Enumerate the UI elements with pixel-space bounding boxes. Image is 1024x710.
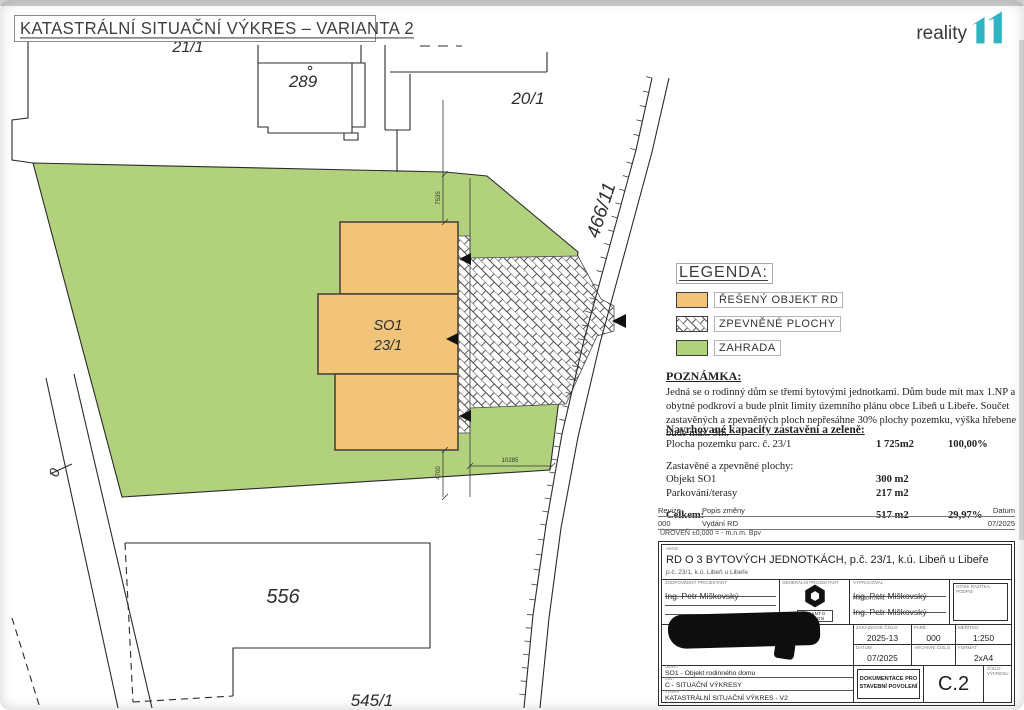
archive-cell: ARCHIVNÍ ČÍSLO (912, 645, 956, 665)
revision-table: Revize Popis změny Datum 000 Vydání RD 0… (658, 506, 1015, 532)
titleblock-numbers-row: ZAKÁZKOVÉ ČÍSLO 2025-13 PARÉ 000 MĚŘÍTKO… (662, 625, 1011, 666)
upper-parcel-lines (385, 45, 547, 172)
road-label: 466/11 (583, 180, 620, 240)
house-block-top (340, 222, 458, 294)
titleblock-project: AKCE RD O 3 BYTOVÝCH JEDNOTKÁCH, p.č. 23… (662, 545, 1011, 580)
paved-area (458, 236, 614, 433)
legend-item-object: ŘEŠENÝ OBJEKT RD (676, 292, 843, 308)
legend-label: ŘEŠENÝ OBJEKT RD (714, 292, 843, 308)
parcel-label-20-1: 20/1 (510, 89, 544, 108)
legend-swatch-green (676, 340, 708, 356)
parcel-label-556: 556 (266, 586, 300, 608)
object-label-parcel: 23/1 (373, 338, 402, 354)
photo-edge-top (0, 0, 1024, 6)
parcel-label-545-1: 545/1 (351, 691, 394, 710)
building-289 (258, 45, 365, 140)
redacted-area (662, 625, 854, 665)
scale-cell: MĚŘÍTKO 1:250 (956, 625, 1011, 645)
parcel-label-289: 289 (288, 72, 318, 91)
table-row: Zastavěné a zpevněné plochy: (666, 460, 1018, 473)
date-cell: DATUM 07/2025 (854, 645, 912, 665)
redaction-blob (668, 611, 821, 649)
legend-swatch-hatch (676, 316, 708, 332)
building-556 (125, 543, 430, 702)
quanto-hexagon-icon (802, 583, 828, 609)
level-note: ÚROVEŇ ±0,000 = - m.n.m. Bpv (660, 530, 761, 537)
logo-text: reality (916, 24, 967, 46)
job-number-cell: ZAKÁZKOVÉ ČÍSLO 2025-13 (854, 625, 912, 645)
stamp-cell: OTISK RAZÍTKA, PODPIS (950, 580, 1011, 624)
table-row: Objekt SO1 300 m2 (666, 473, 1018, 486)
legend-item-paved: ZPEVNĚNÉ PLOCHY (676, 316, 843, 332)
dim-top: 7535 (436, 191, 442, 205)
pare-cell: PARÉ 000 (912, 625, 956, 645)
house-block-bottom (335, 374, 458, 450)
logo-11-icon (970, 8, 1010, 46)
legend-label: ZPEVNĚNÉ PLOCHY (714, 316, 841, 332)
table-row: Parkování/terasy 217 m2 (666, 487, 1018, 500)
drawing-title: KATASTRÁLNÍ SITUAČNÍ VÝKRES – VARIANTA 2 (20, 18, 414, 39)
revision-row: 000 Vydání RD 07/2025 (658, 519, 1015, 530)
note-title: POZNÁMKA: (666, 369, 1018, 384)
legend-label: ZAHRADA (714, 340, 781, 356)
revision-header-row: Revize Popis změny Datum (658, 506, 1015, 517)
format-cell: FORMÁT 2xA4 (956, 645, 1011, 665)
dim-width: 10285 (502, 458, 519, 464)
capacities-title: Navrhované kapacity zastavění a zeleně: (666, 424, 1018, 436)
drawing-number: C.2 (938, 673, 969, 696)
dim-bottom: 4700 (436, 466, 442, 480)
legend: LEGENDA: ŘEŠENÝ OBJEKT RD ZPEVNĚNÉ PLOCH… (676, 263, 843, 356)
stage-cell: DOKUMENTACE PRO STAVEBNÍ POVOLENÍ (854, 666, 924, 702)
photo-edge-right (1019, 40, 1024, 540)
authors-cell: VYPRACOVAL Ing. Petr Miškovský PROJEKTOV… (850, 580, 950, 624)
project-title: RD O 3 BYTOVÝCH JEDNOTKÁCH, p.č. 23/1, k… (666, 554, 1007, 566)
legend-swatch-orange (676, 292, 708, 308)
table-row: Plocha pozemku parc. č. 23/1 1 725m2 100… (666, 438, 1018, 451)
legend-item-garden: ZAHRADA (676, 340, 843, 356)
drawing-title-box: KATASTRÁLNÍ SITUAČNÍ VÝKRES – VARIANTA 2 (14, 15, 376, 42)
cadastral-drawing-sheet: { "page": { "title": "KATASTRÁLNÍ SITUAČ… (0, 0, 1024, 710)
reality11-logo: reality (912, 6, 1014, 48)
titleblock-drawing-row: OBJEKT SO1 - Objekt rodinného domu ČÁST … (662, 666, 1011, 702)
drawing-id-cell: OBJEKT SO1 - Objekt rodinného domu ČÁST … (662, 666, 854, 702)
title-block: AKCE RD O 3 BYTOVÝCH JEDNOTKÁCH, p.č. 23… (658, 541, 1015, 706)
drawing-number-cell: C.2 (924, 666, 984, 702)
legend-title: LEGENDA: (676, 263, 773, 284)
boundary-top-left (12, 42, 33, 163)
object-label-so1: SO1 (373, 318, 402, 334)
empty-end-cell: ČÍSLO VÝKRESU (984, 666, 1012, 702)
house-block-middle (318, 294, 458, 374)
path-label-0: 0 (45, 466, 63, 479)
stage-box: DOKUMENTACE PRO STAVEBNÍ POVOLENÍ (857, 669, 920, 699)
project-subtitle: p.č. 23/1, k.ú. Libeň u Libeře (666, 569, 1007, 576)
